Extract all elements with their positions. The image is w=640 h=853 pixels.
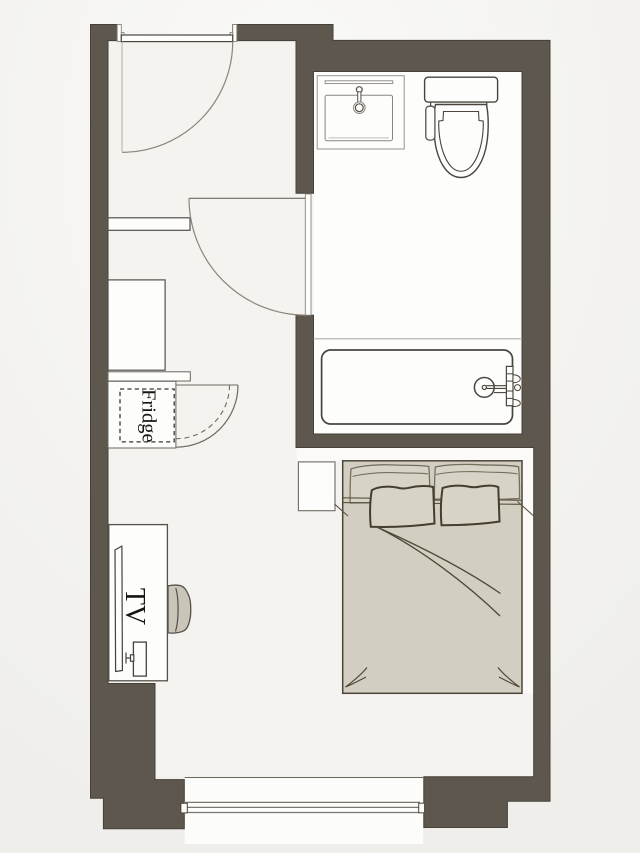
- svg-text:Fridge: Fridge: [137, 389, 159, 443]
- svg-text:TV: TV: [119, 588, 150, 625]
